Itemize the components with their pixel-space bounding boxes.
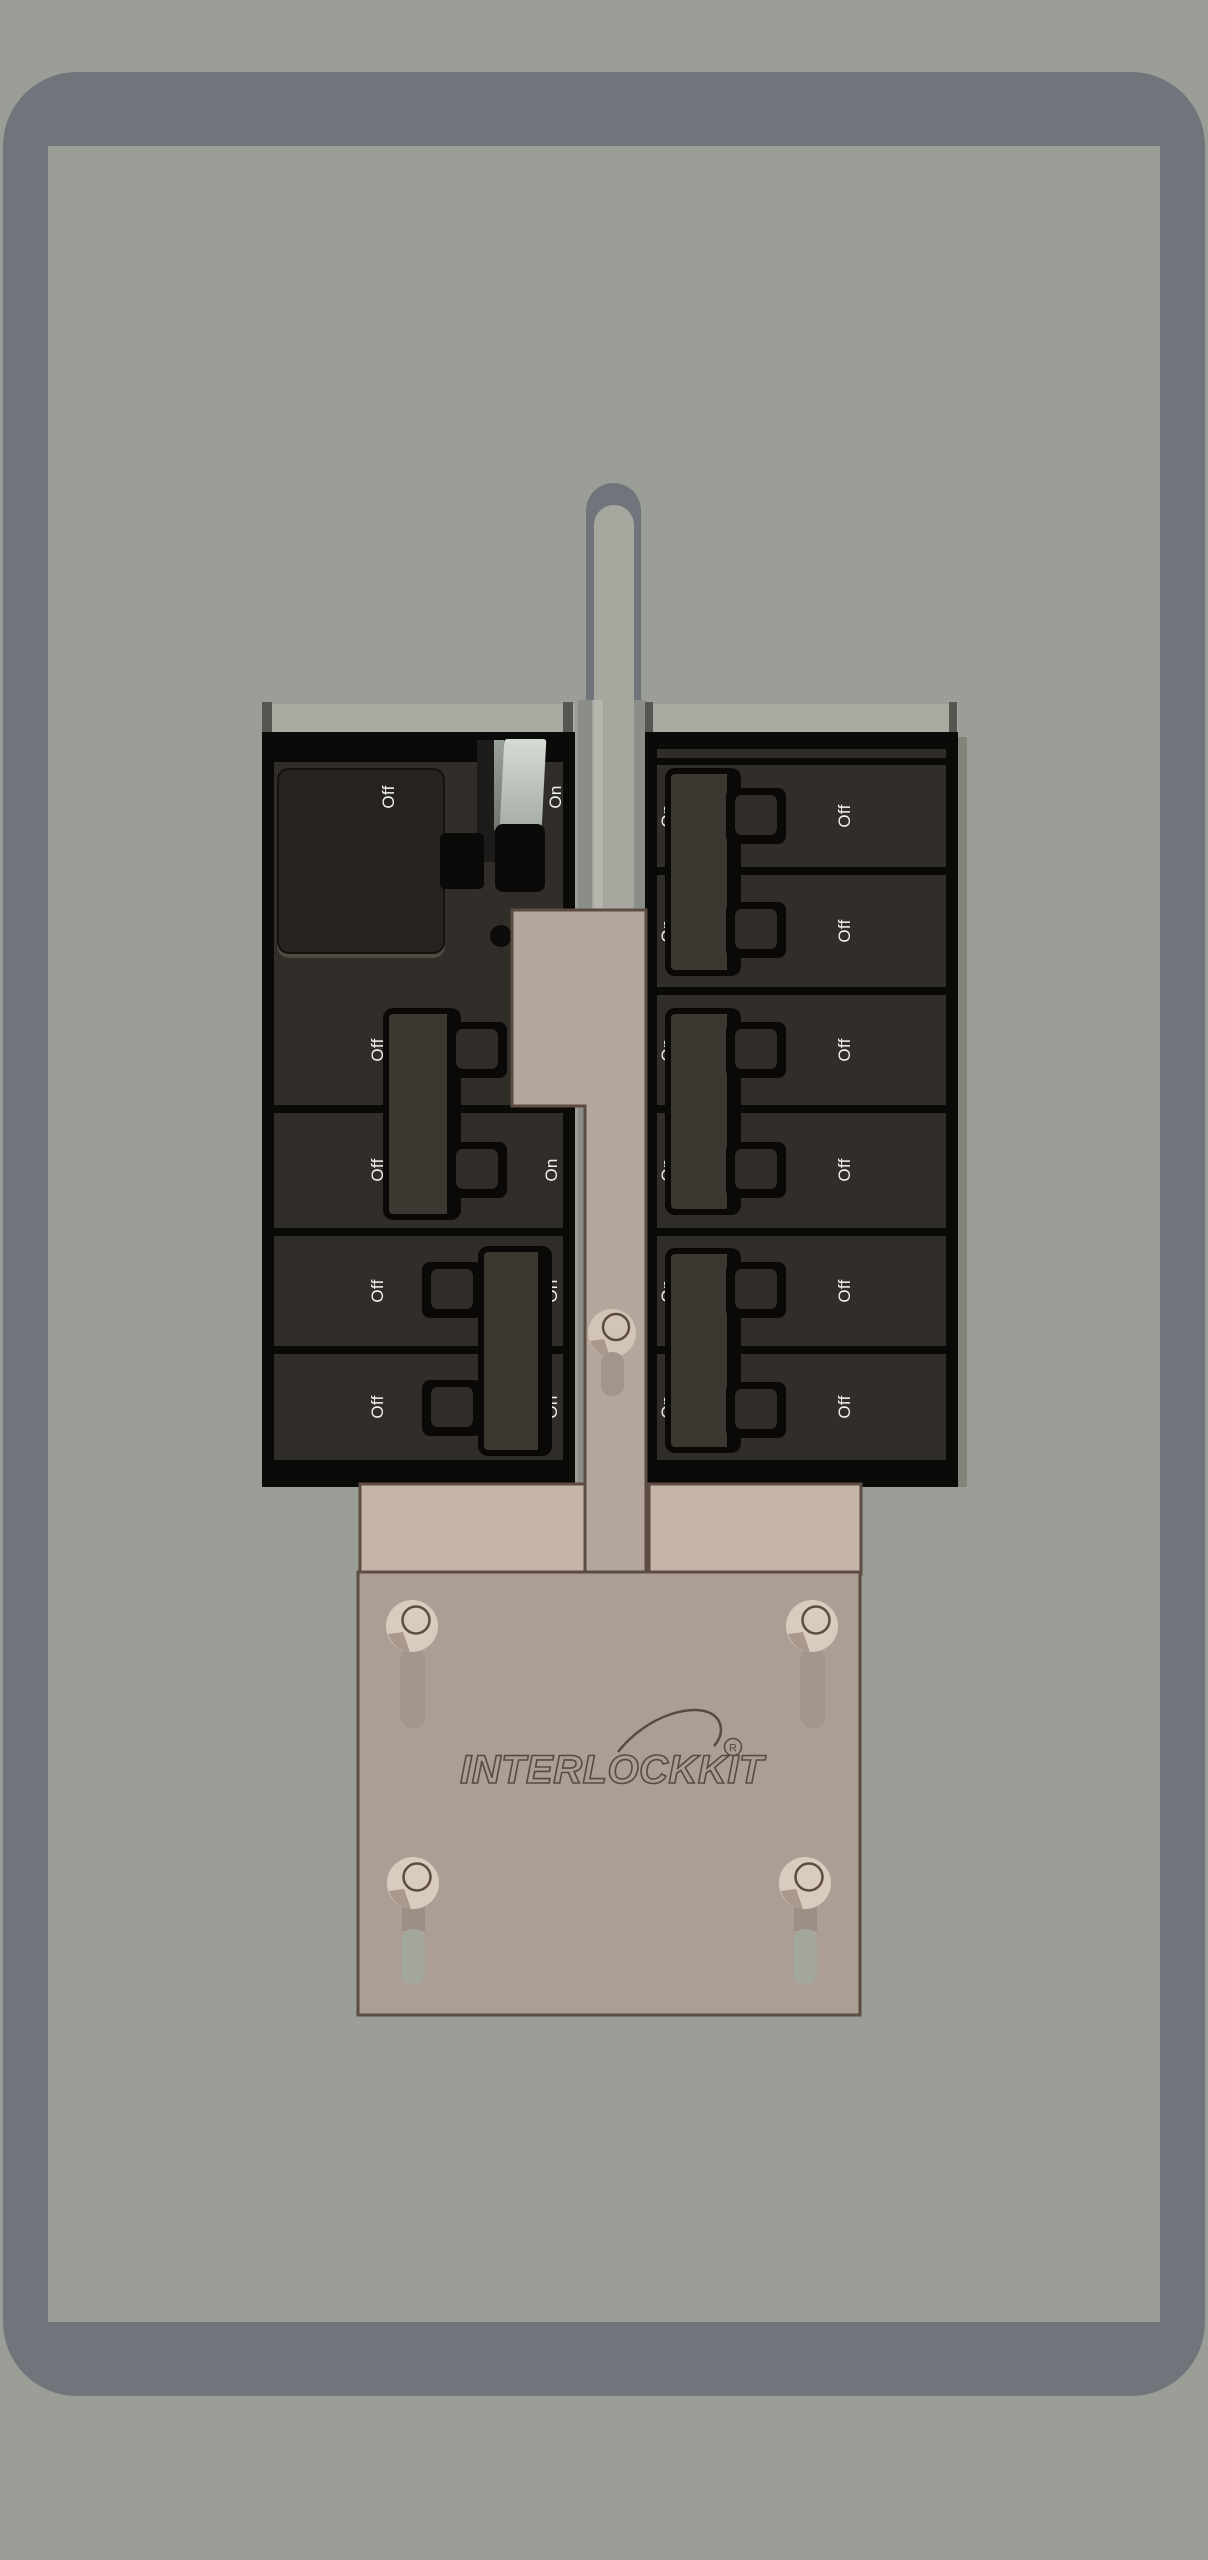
interlock-wing-right <box>649 1484 861 1574</box>
interlock-slide[interactable] <box>512 910 646 1576</box>
interlock-kit-overlay: INTERLOCKKIT R <box>0 0 1208 2560</box>
interlock-wing-left <box>360 1484 585 1574</box>
registered-mark: R <box>729 1743 737 1755</box>
breaker-panel-illustration: Off On Off On Off On Off On Off On On Of… <box>0 0 1208 2560</box>
brand-name: INTERLOCKKIT <box>460 1748 767 1792</box>
